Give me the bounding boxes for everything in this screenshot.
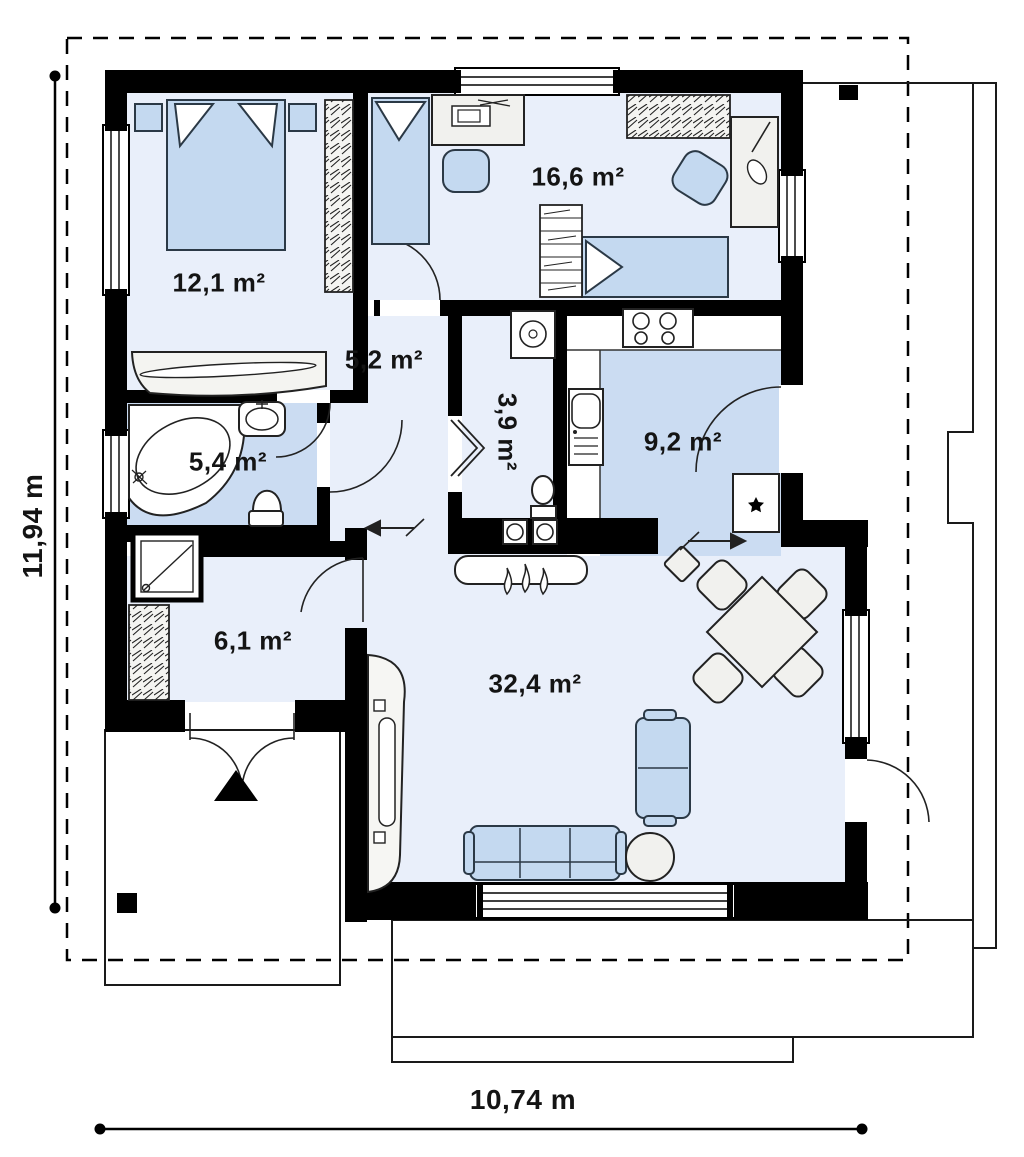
floor-plan-canvas: 12,1 m² 16,6 m² 5,2 m² 3,9 m² 9,2 m² 5,4… <box>0 0 1024 1157</box>
terrace-door <box>867 760 929 822</box>
wardrobe <box>129 605 169 700</box>
single-bed <box>582 237 728 297</box>
kitchen-door-opening <box>779 385 805 473</box>
living-room-terrace-window <box>475 884 735 918</box>
room-label-bedroom: 12,1 m² <box>172 268 265 299</box>
childrens-room-side-window <box>779 170 805 262</box>
room-label-inner-hall: 5,2 m² <box>345 345 423 376</box>
floor-plan-drawing <box>0 0 1024 1157</box>
chair <box>443 150 489 192</box>
entrance-triangle <box>214 770 258 801</box>
room-label-childrens-room: 16,6 m² <box>531 162 624 193</box>
small-toilet <box>531 476 556 518</box>
terrace-step <box>392 1037 793 1062</box>
bookshelf <box>540 205 582 297</box>
room-label-utility: 3,9 m² <box>492 393 523 471</box>
wardrobe <box>627 95 730 138</box>
sofa-three-seat <box>464 826 626 880</box>
double-bed <box>167 100 285 250</box>
dimension-line-left <box>50 71 61 914</box>
washbasin <box>239 400 285 436</box>
sofa-two-seat <box>636 710 690 826</box>
dimension-label-height: 11,94 m <box>17 474 49 579</box>
porch-outline <box>105 730 340 985</box>
room-label-bathroom: 5,4 m² <box>189 447 267 478</box>
bathroom-window <box>103 430 129 518</box>
porch-column <box>117 893 137 913</box>
single-bed <box>372 98 429 244</box>
bedroom-window <box>103 125 129 295</box>
washing-machine <box>511 311 555 358</box>
curved-dresser <box>132 352 326 396</box>
shower <box>133 533 201 600</box>
living-room-side-window <box>843 610 869 743</box>
fridge <box>733 474 779 532</box>
kitchen-sink <box>569 389 603 465</box>
terrace-outline <box>392 920 973 1062</box>
dimension-line-bottom <box>95 1124 868 1135</box>
roof-column-marker <box>839 85 858 100</box>
childrens-room-top-window <box>455 68 619 95</box>
room-label-kitchen: 9,2 m² <box>644 427 722 458</box>
desk <box>432 95 524 145</box>
nightstand <box>289 104 316 131</box>
coffee-table <box>626 833 674 881</box>
fireplace <box>368 655 405 892</box>
desk <box>731 117 778 227</box>
dimension-label-width: 10,74 m <box>470 1084 576 1116</box>
room-label-entry-hall: 6,1 m² <box>214 626 292 657</box>
front-double-door <box>190 713 294 790</box>
nightstand <box>135 104 162 131</box>
wardrobe <box>325 100 353 292</box>
stove <box>623 309 693 347</box>
room-label-living-room: 32,4 m² <box>488 669 581 700</box>
